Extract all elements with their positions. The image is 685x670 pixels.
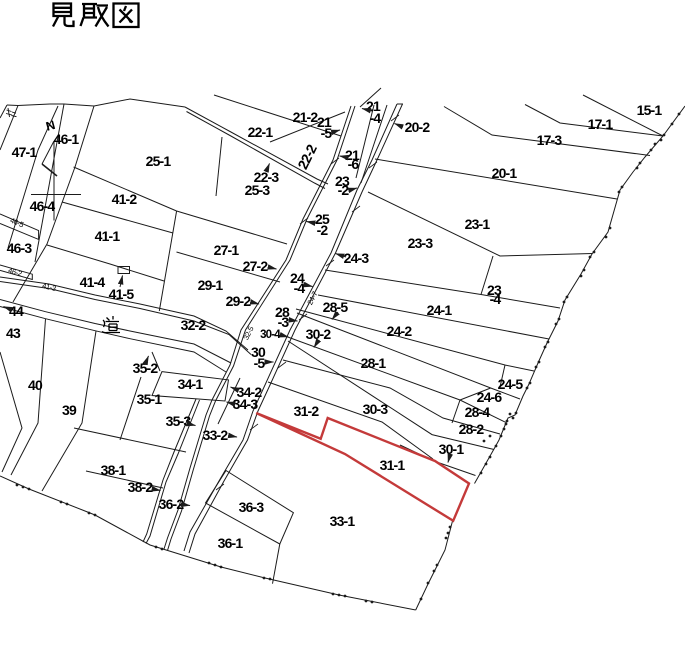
svg-text:-4: -4 xyxy=(490,291,502,307)
svg-text:36-2: 36-2 xyxy=(159,496,185,512)
svg-text:-2: -2 xyxy=(338,182,350,198)
svg-text:43: 43 xyxy=(6,325,21,341)
svg-text:35-2: 35-2 xyxy=(133,360,159,376)
svg-text:29-2: 29-2 xyxy=(226,293,252,309)
svg-text:29-1: 29-1 xyxy=(198,277,224,293)
svg-text:28-1: 28-1 xyxy=(361,355,387,371)
svg-text:-3: -3 xyxy=(278,314,290,330)
svg-text:-2: -2 xyxy=(317,222,329,238)
svg-text:35-3: 35-3 xyxy=(166,413,192,429)
svg-text:-5: -5 xyxy=(254,355,266,371)
svg-text:47-1: 47-1 xyxy=(12,144,38,160)
svg-text:41-2: 41-2 xyxy=(112,191,138,207)
svg-text:27-2: 27-2 xyxy=(243,258,269,274)
svg-text:36-1: 36-1 xyxy=(218,535,244,551)
svg-text:34-1: 34-1 xyxy=(178,376,204,392)
svg-text:46-5: 46-5 xyxy=(9,216,25,230)
svg-text:-4: -4 xyxy=(294,280,306,296)
svg-text:41-1: 41-1 xyxy=(95,228,121,244)
svg-text:28-4: 28-4 xyxy=(465,404,491,420)
svg-text:22-1: 22-1 xyxy=(248,124,274,140)
svg-text:24-3: 24-3 xyxy=(344,250,370,266)
svg-text:23-1: 23-1 xyxy=(465,216,491,232)
svg-text:33-2: 33-2 xyxy=(203,427,229,443)
svg-text:41-4: 41-4 xyxy=(80,274,106,290)
svg-text:34-3: 34-3 xyxy=(233,396,259,412)
svg-text:31-2: 31-2 xyxy=(294,403,320,419)
svg-text:17-3: 17-3 xyxy=(537,132,563,148)
svg-text:30-2: 30-2 xyxy=(306,326,332,342)
svg-text:46-3: 46-3 xyxy=(7,240,33,256)
svg-text:24-6: 24-6 xyxy=(477,389,503,405)
svg-text:39: 39 xyxy=(62,402,77,418)
svg-text:23-3: 23-3 xyxy=(408,235,434,251)
svg-text:30-4: 30-4 xyxy=(260,329,281,341)
svg-text:17-1: 17-1 xyxy=(588,116,614,132)
svg-text:38-1: 38-1 xyxy=(101,462,127,478)
svg-text:20-1: 20-1 xyxy=(492,165,518,181)
svg-text:41-3: 41-3 xyxy=(41,281,57,293)
svg-text:-5: -5 xyxy=(321,125,333,141)
svg-text:27-1: 27-1 xyxy=(214,242,240,258)
svg-text:46-2: 46-2 xyxy=(7,266,23,278)
svg-text:24-2: 24-2 xyxy=(387,323,413,339)
svg-text:31-1: 31-1 xyxy=(380,457,406,473)
svg-text:35-1: 35-1 xyxy=(137,391,163,407)
svg-text:33-1: 33-1 xyxy=(330,513,356,529)
svg-text:32-2: 32-2 xyxy=(181,317,207,333)
svg-text:32-5: 32-5 xyxy=(241,325,255,341)
svg-text:30-3: 30-3 xyxy=(363,401,389,417)
svg-text:41-5: 41-5 xyxy=(109,286,135,302)
svg-text:24-7: 24-7 xyxy=(305,290,319,306)
svg-text:36-3: 36-3 xyxy=(239,499,265,515)
svg-text:25-1: 25-1 xyxy=(146,153,172,169)
svg-text:22-2: 22-2 xyxy=(294,141,320,171)
svg-text:24-5: 24-5 xyxy=(498,376,524,392)
svg-text:21-2: 21-2 xyxy=(293,109,319,125)
svg-text:28-2: 28-2 xyxy=(459,421,485,437)
svg-text:30-1: 30-1 xyxy=(439,441,465,457)
svg-text:46-4: 46-4 xyxy=(30,198,56,214)
svg-text:28-5: 28-5 xyxy=(323,299,349,315)
svg-text:44: 44 xyxy=(9,303,24,319)
svg-text:20-2: 20-2 xyxy=(405,119,431,135)
svg-text:-4: -4 xyxy=(370,110,382,126)
svg-text:-6: -6 xyxy=(348,156,360,172)
svg-text:46-1: 46-1 xyxy=(54,131,80,147)
svg-text:24-1: 24-1 xyxy=(427,302,453,318)
svg-text:38-2: 38-2 xyxy=(128,479,154,495)
svg-text:40: 40 xyxy=(28,377,43,393)
svg-text:25-3: 25-3 xyxy=(245,182,271,198)
svg-text:15-1: 15-1 xyxy=(637,102,663,118)
